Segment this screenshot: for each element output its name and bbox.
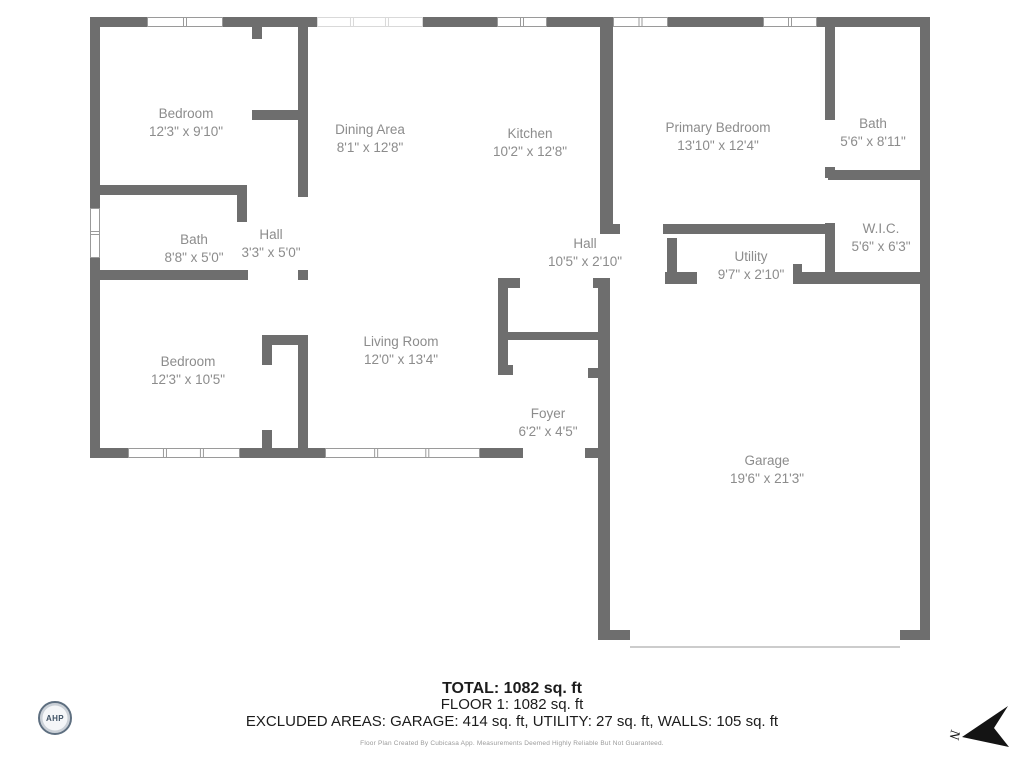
room-name: Bedroom <box>161 354 216 369</box>
wall <box>828 170 930 180</box>
room-name: Garage <box>744 453 789 468</box>
window <box>318 17 423 27</box>
room-label: Bath8'8" x 5'0" <box>164 232 223 265</box>
window <box>614 17 668 27</box>
wall <box>90 185 247 195</box>
ahp-seal-logo: AHP <box>38 701 72 735</box>
wall <box>665 272 697 284</box>
wall <box>920 17 930 640</box>
wall <box>547 17 613 27</box>
room-name: Dining Area <box>335 122 405 137</box>
compass-letter: N <box>945 728 962 741</box>
wall <box>252 27 262 39</box>
window <box>148 17 223 27</box>
room-name: Bedroom <box>159 106 214 121</box>
window <box>326 448 480 458</box>
wall <box>237 195 247 222</box>
wall <box>90 270 248 280</box>
room-label: Kitchen10'2" x 12'8" <box>493 126 567 159</box>
room-name: Hall <box>573 236 596 251</box>
wall <box>825 223 835 278</box>
wall <box>252 110 298 120</box>
wall <box>900 630 930 640</box>
excluded-areas-text: EXCLUDED AREAS: GARAGE: 414 sq. ft, UTIL… <box>0 713 1024 730</box>
room-dimensions: 10'5" x 2'10" <box>548 254 622 269</box>
room-name: W.I.C. <box>863 221 900 236</box>
wall <box>505 332 610 340</box>
wall <box>793 264 802 272</box>
window <box>129 448 240 458</box>
room-name: Bath <box>859 116 887 131</box>
wall <box>600 27 613 224</box>
room-name: Primary Bedroom <box>665 120 770 135</box>
wall <box>588 368 598 378</box>
room-dimensions: 10'2" x 12'8" <box>493 144 567 159</box>
wall <box>668 17 763 27</box>
wall <box>498 278 520 288</box>
room-dimensions: 9'7" x 2'10" <box>718 267 785 282</box>
wall <box>240 448 325 458</box>
room-dimensions: 12'3" x 9'10" <box>149 124 223 139</box>
room-name: Living Room <box>363 334 438 349</box>
disclaimer-text: Floor Plan Created By Cubicasa App. Meas… <box>0 740 1024 747</box>
window <box>90 209 100 258</box>
floor-area-text: FLOOR 1: 1082 sq. ft <box>0 697 1024 713</box>
total-area-text: TOTAL: 1082 sq. ft <box>0 680 1024 697</box>
wall <box>262 335 272 365</box>
room-name: Kitchen <box>507 126 552 141</box>
room-dimensions: 6'2" x 4'5" <box>518 424 577 439</box>
room-dimensions: 12'0" x 13'4" <box>364 352 438 367</box>
room-dimensions: 12'3" x 10'5" <box>151 372 225 387</box>
wall <box>90 17 100 208</box>
wall <box>498 365 513 375</box>
wall <box>498 278 508 375</box>
summary-footer: TOTAL: 1082 sq. ft FLOOR 1: 1082 sq. ft … <box>0 680 1024 747</box>
floorplan-svg: Bedroom12'3" x 9'10"Dining Area8'1" x 12… <box>0 0 1024 768</box>
room-dimensions: 13'10" x 12'4" <box>677 138 759 153</box>
room-label: Bath5'6" x 8'11" <box>840 116 906 149</box>
room-label: Utility9'7" x 2'10" <box>718 249 785 282</box>
wall <box>480 448 523 458</box>
wall <box>793 272 930 284</box>
room-label: Bedroom12'3" x 9'10" <box>149 106 223 139</box>
room-dimensions: 8'8" x 5'0" <box>164 250 223 265</box>
wall <box>298 270 308 280</box>
north-compass-icon: N <box>942 698 1020 760</box>
wall <box>423 17 497 27</box>
room-dimensions: 3'3" x 5'0" <box>241 245 300 260</box>
garage-door-line <box>630 646 900 648</box>
wall <box>817 17 930 27</box>
room-name: Bath <box>180 232 208 247</box>
room-label: Garage19'6" x 21'3" <box>730 453 804 486</box>
wall <box>262 430 272 448</box>
room-dimensions: 5'6" x 6'3" <box>851 239 910 254</box>
room-dimensions: 5'6" x 8'11" <box>840 134 906 149</box>
room-label: Living Room12'0" x 13'4" <box>363 334 438 367</box>
room-name: Utility <box>735 249 768 264</box>
room-label: Foyer6'2" x 4'5" <box>518 406 577 439</box>
room-label: Dining Area8'1" x 12'8" <box>335 122 405 155</box>
room-label: Hall10'5" x 2'10" <box>548 236 622 269</box>
ahp-logo-text: AHP <box>46 714 64 723</box>
room-label: W.I.C.5'6" x 6'3" <box>851 221 910 254</box>
wall <box>223 17 317 27</box>
compass-arrow <box>962 706 1009 747</box>
room-name: Foyer <box>531 406 566 421</box>
wall <box>90 258 100 458</box>
wall <box>663 224 835 234</box>
room-label: Hall3'3" x 5'0" <box>241 227 300 260</box>
room-dimensions: 8'1" x 12'8" <box>337 140 404 155</box>
wall <box>600 224 620 234</box>
window <box>498 17 547 27</box>
wall <box>598 278 610 640</box>
room-label: Primary Bedroom13'10" x 12'4" <box>665 120 770 153</box>
room-dimensions: 19'6" x 21'3" <box>730 471 804 486</box>
room-name: Hall <box>259 227 282 242</box>
wall <box>825 27 835 120</box>
wall <box>90 448 128 458</box>
wall <box>298 335 308 448</box>
wall <box>298 27 308 197</box>
floorplan-page: Bedroom12'3" x 9'10"Dining Area8'1" x 12… <box>0 0 1024 768</box>
room-label: Bedroom12'3" x 10'5" <box>151 354 225 387</box>
window <box>764 17 817 27</box>
